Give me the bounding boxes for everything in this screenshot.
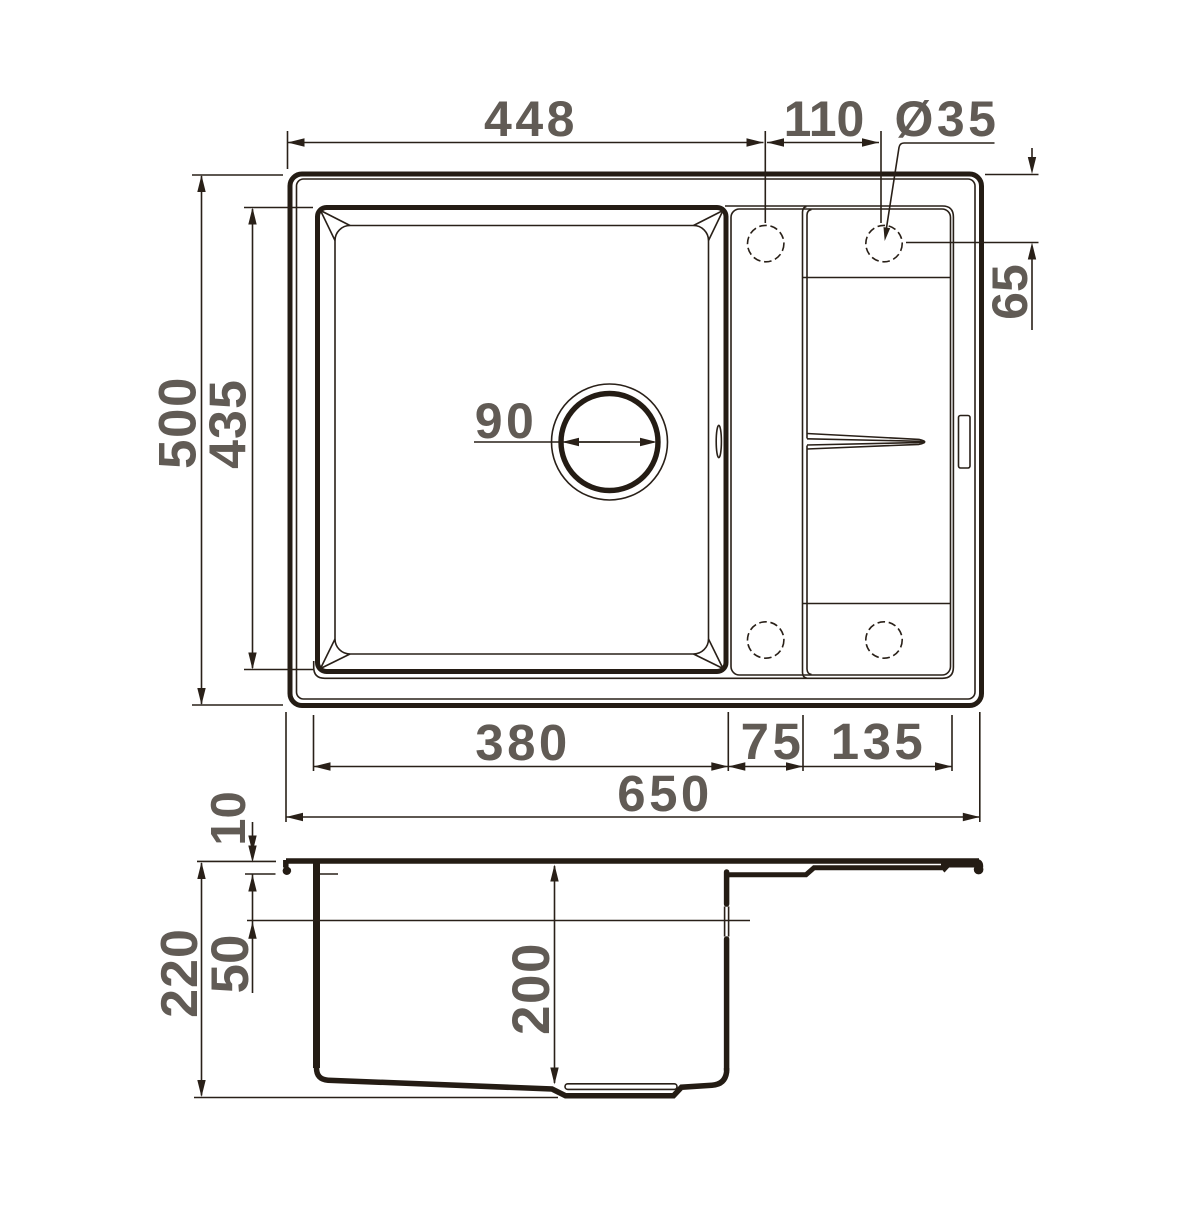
svg-text:10: 10 [202,791,256,846]
svg-text:50: 50 [201,935,260,994]
svg-text:200: 200 [502,942,561,1035]
svg-text:Ø35: Ø35 [894,91,999,147]
svg-text:75: 75 [741,713,805,770]
svg-text:90: 90 [475,393,538,449]
svg-text:65: 65 [982,264,1038,320]
svg-text:380: 380 [475,714,571,771]
svg-text:448: 448 [484,91,578,147]
svg-text:435: 435 [200,379,258,469]
svg-text:135: 135 [831,713,927,770]
svg-text:650: 650 [617,765,713,822]
svg-text:110: 110 [784,91,865,147]
